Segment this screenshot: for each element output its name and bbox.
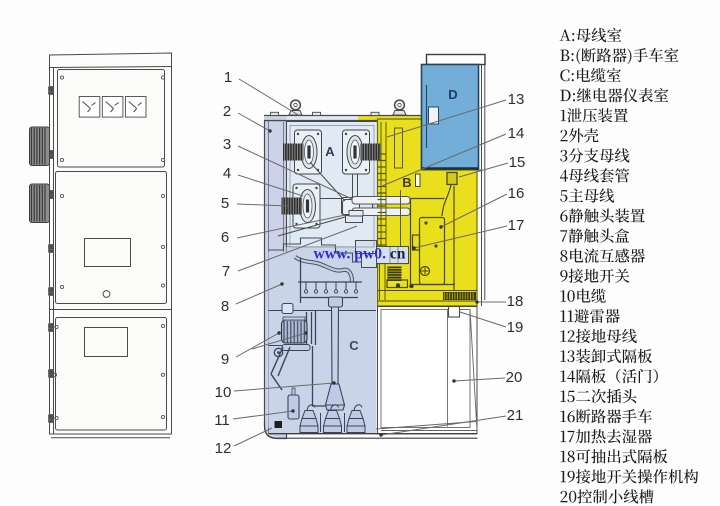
svg-text:14: 14 bbox=[508, 125, 525, 142]
svg-text:10: 10 bbox=[215, 384, 232, 401]
svg-text:B: B bbox=[402, 175, 411, 190]
svg-text:12: 12 bbox=[215, 440, 232, 457]
svg-text:9: 9 bbox=[221, 351, 229, 368]
svg-text:D: D bbox=[448, 87, 457, 102]
svg-text:11: 11 bbox=[214, 412, 230, 429]
svg-text:3: 3 bbox=[223, 136, 231, 153]
svg-text:C: C bbox=[349, 338, 359, 353]
svg-text:13: 13 bbox=[508, 91, 525, 108]
svg-text:7: 7 bbox=[222, 263, 230, 280]
svg-text:6: 6 bbox=[221, 229, 229, 246]
svg-text:4: 4 bbox=[223, 165, 231, 182]
svg-text:8: 8 bbox=[221, 298, 229, 315]
svg-text:2: 2 bbox=[223, 103, 231, 120]
svg-text:1: 1 bbox=[224, 69, 232, 86]
svg-text:20: 20 bbox=[506, 369, 523, 386]
svg-text:5: 5 bbox=[221, 195, 229, 212]
svg-text:19: 19 bbox=[507, 319, 524, 336]
svg-text:16: 16 bbox=[508, 185, 525, 202]
svg-text:15: 15 bbox=[509, 154, 526, 171]
svg-text:www. pw0. cn: www. pw0. cn bbox=[314, 246, 406, 263]
svg-text:18: 18 bbox=[507, 293, 524, 310]
svg-text:21: 21 bbox=[507, 407, 524, 424]
svg-text:A: A bbox=[325, 144, 335, 159]
svg-text:17: 17 bbox=[508, 217, 525, 234]
